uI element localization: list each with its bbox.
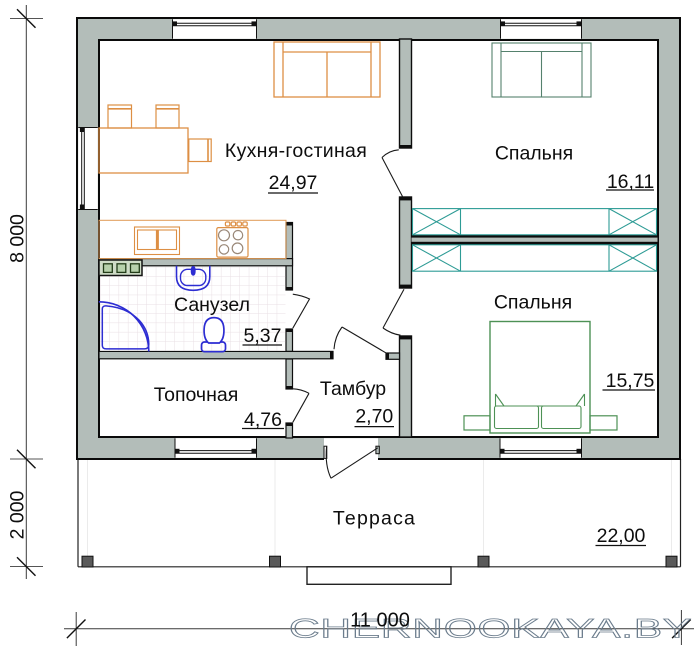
svg-text:Тамбур: Тамбур bbox=[320, 378, 386, 400]
svg-text:Кухня-гостиная: Кухня-гостиная bbox=[225, 140, 367, 162]
svg-text:Терраса: Терраса bbox=[333, 508, 416, 530]
svg-text:24,97: 24,97 bbox=[269, 172, 318, 194]
svg-text:4,76: 4,76 bbox=[244, 409, 282, 431]
svg-text:Спальня: Спальня bbox=[494, 292, 572, 314]
svg-text:Санузел: Санузел bbox=[174, 294, 250, 316]
svg-text:22,00: 22,00 bbox=[597, 525, 646, 547]
svg-text:11 000: 11 000 bbox=[350, 610, 410, 632]
svg-text:2 000: 2 000 bbox=[7, 490, 29, 539]
svg-text:Топочная: Топочная bbox=[154, 384, 239, 406]
svg-text:15,75: 15,75 bbox=[606, 370, 655, 392]
svg-text:8 000: 8 000 bbox=[7, 214, 29, 263]
svg-text:Спальня: Спальня bbox=[495, 143, 573, 165]
svg-text:2,70: 2,70 bbox=[355, 406, 393, 428]
svg-text:5,37: 5,37 bbox=[244, 325, 282, 347]
